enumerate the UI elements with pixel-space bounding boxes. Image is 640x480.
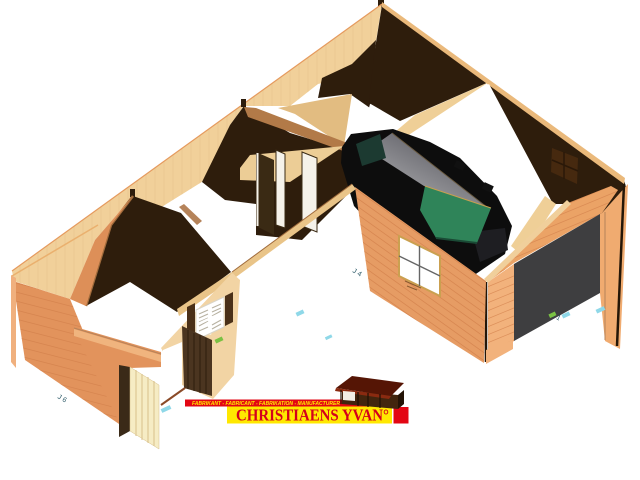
svg-text:CHRISTIAENS YVAN°: CHRISTIAENS YVAN°: [236, 406, 389, 425]
